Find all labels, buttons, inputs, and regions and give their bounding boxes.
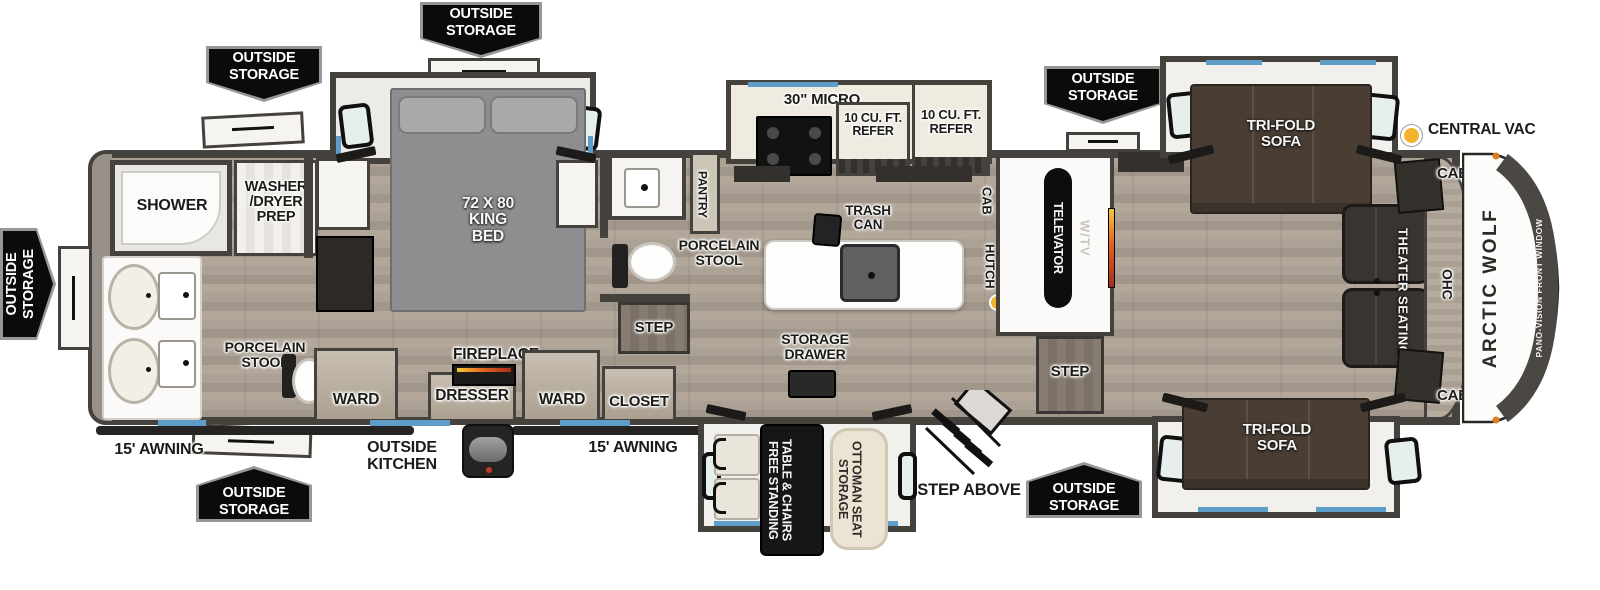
wall-midbath-bottom bbox=[600, 294, 690, 302]
storage-drawer bbox=[788, 370, 836, 398]
wall-accent bbox=[370, 420, 450, 426]
kitchen-counter-left bbox=[734, 166, 790, 182]
dinette-chair bbox=[714, 478, 760, 520]
wall-accent bbox=[158, 420, 206, 426]
wall-bath-bedroom bbox=[304, 154, 313, 258]
arctic-wolf-label: ARCTIC WOLF bbox=[1480, 208, 1501, 368]
tri-fold-sofa-label-top: TRI-FOLD SOFA bbox=[1226, 118, 1336, 150]
vanity-basin bbox=[158, 340, 196, 388]
outside-storage-label: OUTSIDE STORAGE bbox=[4, 242, 36, 326]
outside-storage-label: OUTSIDE STORAGE bbox=[1042, 481, 1126, 513]
cupholder bbox=[1374, 278, 1380, 284]
step-above-label: STEP ABOVE bbox=[906, 482, 1032, 499]
slide-accent bbox=[1316, 507, 1386, 512]
slide-accent bbox=[1198, 507, 1268, 512]
outside-storage-callout-top-center: OUTSIDE STORAGE bbox=[420, 2, 542, 58]
bedroom-ward-left bbox=[316, 158, 370, 230]
dinette-window-right bbox=[898, 452, 917, 500]
central-vac-icon bbox=[1404, 128, 1419, 143]
hutch-label: HUTCH bbox=[983, 234, 997, 298]
badge-face: OUTSIDE STORAGE bbox=[423, 5, 539, 55]
shower-label: SHOWER bbox=[124, 198, 220, 215]
cupholder bbox=[1374, 290, 1380, 296]
toilet-mid-tank bbox=[612, 244, 628, 288]
slide-accent bbox=[1320, 60, 1376, 65]
toilet-mid-bowl bbox=[628, 242, 676, 282]
badge-face: OUTSIDE STORAGE bbox=[1047, 69, 1159, 121]
floorplan-diagram: OUTSIDE STORAGE OUTSIDE STORAGE OUTSIDE … bbox=[0, 0, 1600, 590]
outside-kitchen-label: OUTSIDE KITCHEN bbox=[352, 440, 452, 474]
free-standing-table-label: FREE STANDING TABLE & CHAIRS bbox=[766, 430, 818, 550]
pantry-label: PANTRY bbox=[696, 160, 709, 228]
cab-label-kitchen: CAB bbox=[980, 180, 994, 222]
slide-accent bbox=[748, 82, 838, 87]
wardrobe-2 bbox=[522, 350, 600, 422]
w-tv-label: W/TV bbox=[1078, 206, 1092, 270]
dinette-chair bbox=[714, 434, 760, 476]
awning-label-rear: 15' AWNING bbox=[104, 442, 214, 459]
sofa-bottom-window-right bbox=[1384, 436, 1423, 485]
grill-icon bbox=[462, 424, 514, 478]
trash-can-label: TRASH CAN bbox=[838, 204, 898, 232]
vanity-basin bbox=[158, 272, 196, 320]
wardrobe-1 bbox=[314, 348, 398, 422]
outside-storage-callout-bottom-right: OUTSIDE STORAGE bbox=[1026, 462, 1142, 518]
king-bed-label: 72 X 80 KING BED bbox=[457, 196, 519, 245]
outside-storage-callout-top-right: OUTSIDE STORAGE bbox=[1044, 66, 1162, 124]
ward-label-2: WARD bbox=[532, 392, 592, 408]
closet-label: CLOSET bbox=[606, 394, 672, 410]
outside-storage-label: OUTSIDE STORAGE bbox=[1061, 71, 1145, 103]
bedroom-tv-cabinet bbox=[316, 236, 374, 312]
vanity-sink bbox=[108, 338, 160, 404]
slide-accent bbox=[1206, 60, 1262, 65]
bedroom-window-left bbox=[337, 102, 374, 150]
wall-accent bbox=[560, 420, 630, 426]
storage-drawer-label: STORAGE DRAWER bbox=[774, 332, 856, 361]
fireplace-unit bbox=[452, 364, 516, 386]
outside-storage-label: OUTSIDE STORAGE bbox=[439, 6, 523, 38]
island-sink bbox=[840, 244, 900, 302]
tri-fold-sofa-label-bottom: TRI-FOLD SOFA bbox=[1222, 422, 1332, 454]
kitchen-counter-right bbox=[876, 166, 972, 182]
storage-ottoman-label: STORAGE OTTOMAN SEAT bbox=[836, 434, 882, 544]
dresser-label: DRESSER bbox=[432, 388, 512, 404]
awning-label-mid: 15' AWNING bbox=[578, 440, 688, 457]
outside-storage-callout-top-left: OUTSIDE STORAGE bbox=[206, 46, 322, 102]
outside-storage-callout-rear: OUTSIDE STORAGE bbox=[0, 228, 56, 340]
ohc-label: OHC bbox=[1440, 252, 1455, 316]
badge-face: OUTSIDE STORAGE bbox=[3, 231, 53, 337]
midbath-sink-counter bbox=[608, 154, 686, 220]
rear-storage-door-handle bbox=[72, 276, 75, 320]
step-label-mid: STEP bbox=[628, 320, 680, 336]
outside-storage-label: OUTSIDE STORAGE bbox=[222, 50, 306, 82]
refer-label-2: 10 CU. FT. REFER bbox=[918, 108, 984, 135]
front-nose-cap: ARCTIC WOLF PANO-VISION FRONT WINDOW bbox=[1462, 146, 1564, 430]
televator-label: TELEVATOR bbox=[1051, 178, 1064, 298]
badge-face: OUTSIDE STORAGE bbox=[209, 49, 319, 99]
awning-bar-rear bbox=[96, 426, 414, 435]
porcelain-stool-label-mid: PORCELAIN STOOL bbox=[676, 238, 762, 267]
storage-door-handle bbox=[1088, 140, 1118, 143]
refer-label-1: 10 CU. FT. REFER bbox=[840, 112, 906, 138]
ward-label-1: WARD bbox=[326, 392, 386, 408]
central-vac-label: CENTRAL VAC bbox=[1428, 122, 1540, 138]
vanity-sink bbox=[108, 264, 160, 330]
theater-seat-top bbox=[1342, 204, 1434, 284]
stairs-icon bbox=[920, 390, 1016, 480]
wall-bedroom-midbath bbox=[600, 154, 608, 238]
electric-fireplace-strip bbox=[1108, 208, 1115, 288]
awning-bar-mid bbox=[512, 426, 708, 435]
step-label-living: STEP bbox=[1044, 364, 1096, 380]
pano-vision-label: PANO-VISION FRONT WINDOW bbox=[1534, 218, 1544, 357]
outside-storage-label: OUTSIDE STORAGE bbox=[212, 485, 296, 517]
washer-dryer-prep-label: WASHER /DRYER PREP bbox=[244, 180, 308, 226]
bedroom-cab-right bbox=[556, 160, 598, 228]
rear-storage-door bbox=[58, 246, 92, 350]
outside-storage-callout-bottom-left: OUTSIDE STORAGE bbox=[196, 466, 312, 522]
badge-face: OUTSIDE STORAGE bbox=[199, 469, 309, 519]
badge-face: OUTSIDE STORAGE bbox=[1029, 465, 1139, 515]
